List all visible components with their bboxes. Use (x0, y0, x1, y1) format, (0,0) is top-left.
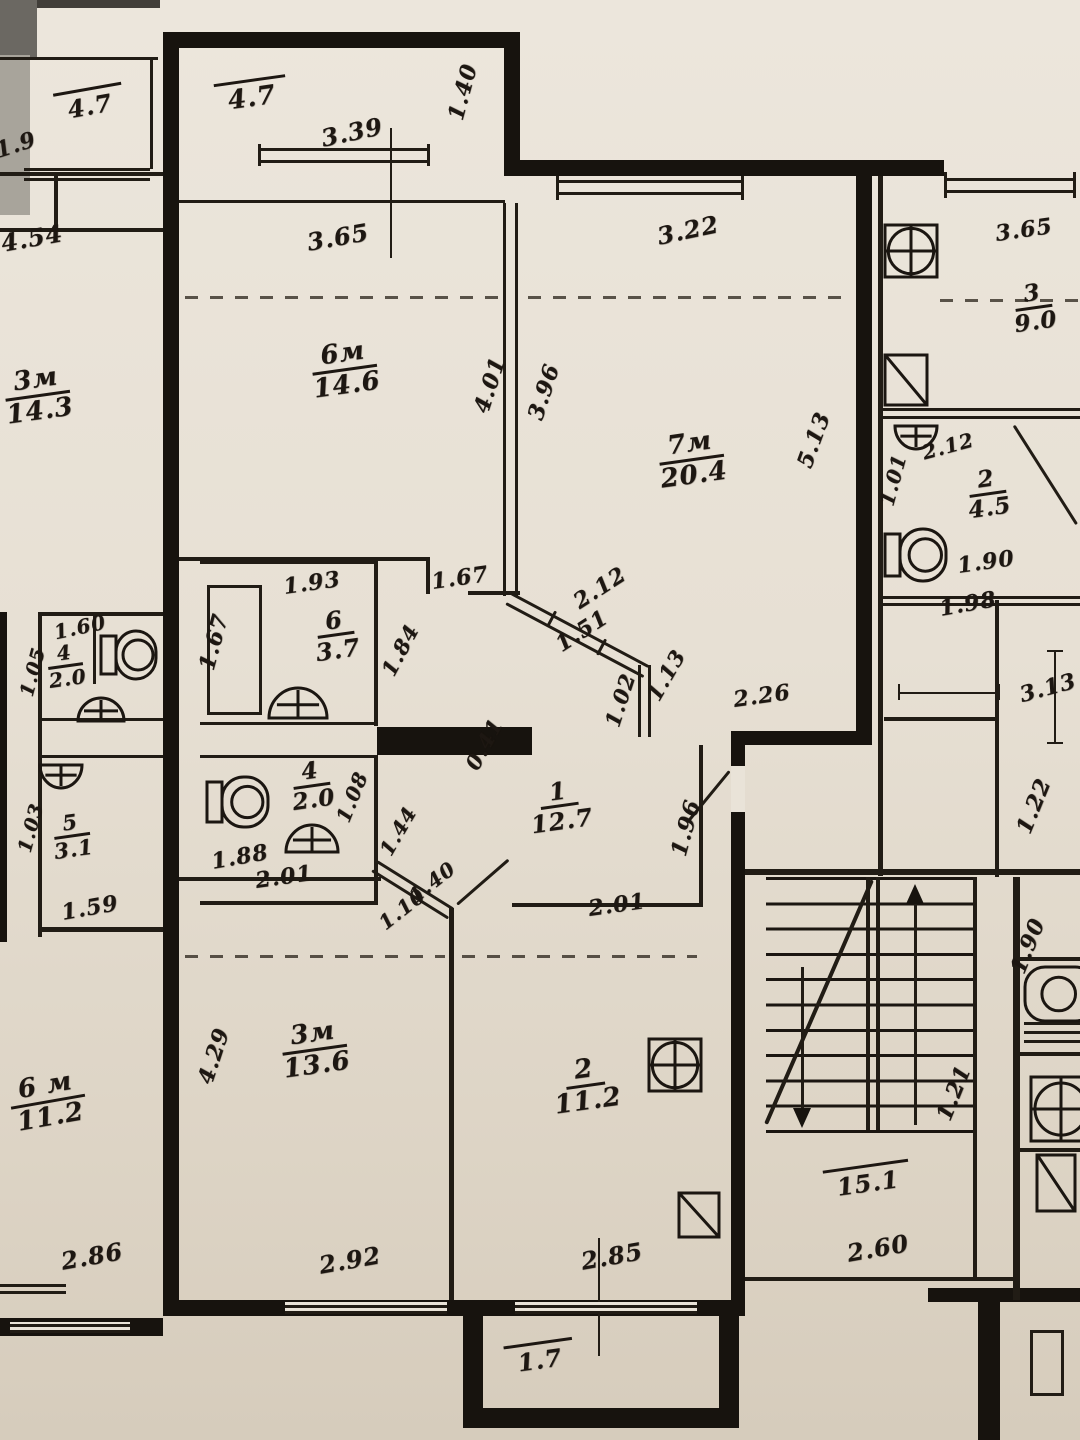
wall-thin (866, 877, 870, 1130)
wall-thin (200, 560, 378, 564)
tub-icon (1024, 966, 1080, 1022)
wall-thin (374, 560, 378, 726)
wall-thin (150, 57, 153, 169)
window-glazing (10, 1330, 130, 1333)
room-area: 4.5 (967, 492, 1013, 523)
wall-thin (374, 757, 378, 905)
window-glazing (515, 1305, 697, 1308)
wall-thin (1047, 650, 1063, 652)
wall-thick (463, 1408, 739, 1428)
wall-thin (944, 178, 1076, 181)
wall-thin (426, 557, 430, 594)
wall-thin (1030, 1393, 1064, 1396)
dim-label: 1.08 (331, 768, 373, 826)
dim-label: 1.03 (14, 801, 48, 855)
wall-thin (914, 893, 917, 1125)
wall-thin (0, 172, 163, 176)
dim-label: 1.02 (600, 670, 641, 730)
wall-thin (1073, 172, 1076, 198)
wall-thin (898, 684, 900, 700)
wall-thin (745, 1277, 1013, 1281)
area-label: 4.7 (214, 78, 290, 118)
wall-thin (1024, 1031, 1080, 1034)
area-value: 15.1 (823, 1159, 913, 1204)
wall-thin (200, 722, 378, 725)
wall-thin (1024, 1040, 1080, 1043)
sink-icon (38, 763, 84, 790)
dashed-line (185, 955, 445, 958)
dim-label: 3.65 (994, 213, 1055, 247)
dashed-line (528, 296, 850, 299)
wall-thin (0, 57, 158, 60)
stove-icon (884, 224, 938, 278)
room-label: 6 м11.2 (6, 1066, 90, 1138)
stove-icon (1030, 1076, 1080, 1142)
wall-thick (978, 1302, 1000, 1440)
room-area: 2.0 (47, 665, 87, 692)
dashed-line (462, 955, 697, 958)
wall-thin (745, 869, 1080, 875)
dim-label: 1.22 (1011, 774, 1057, 837)
sink-icon (267, 686, 329, 720)
wall-thin (556, 192, 744, 195)
dim-label: 2.85 (579, 1236, 646, 1275)
wall-thin (556, 180, 744, 183)
room-label: 53.1 (49, 809, 95, 863)
wall-thick (928, 1288, 1080, 1302)
area-value: 4.7 (53, 82, 126, 126)
wall-thin (944, 190, 1076, 193)
area-label: 4.7 (54, 86, 127, 127)
window-glazing (285, 1311, 447, 1314)
stair-arrow-icon (906, 884, 924, 904)
room-label: 211.2 (549, 1052, 624, 1120)
wall-thin (998, 684, 1000, 700)
room-label: 42.0 (44, 640, 88, 692)
floor-plan-canvas: 4.73.391.403.653.226м14.67м20.44.013.965… (0, 0, 1080, 1440)
door-leaf (456, 859, 509, 905)
dim-label: 4.29 (193, 1025, 236, 1088)
dim-label: 3.96 (523, 361, 566, 424)
dim-label: 3.65 (305, 217, 372, 256)
wall-thin (207, 712, 262, 715)
room-area: 2.0 (291, 784, 337, 815)
room-area: 3.7 (314, 633, 362, 665)
wall-thick (504, 32, 520, 176)
wall-thin (515, 203, 518, 560)
fridge-icon (1036, 1154, 1076, 1212)
wall-thin (1061, 1330, 1064, 1396)
wall-thick (0, 612, 7, 942)
dim-label: 1.67 (430, 561, 491, 595)
room-label: 6м14.6 (308, 336, 383, 404)
room-label: 42.0 (287, 757, 337, 816)
wall-thin (179, 200, 505, 203)
dim-label: 2.60 (845, 1228, 912, 1267)
wall-thin (900, 692, 1000, 694)
dim-label: 4.54 (0, 218, 65, 257)
wall-thin (0, 1284, 66, 1287)
wall-thin (876, 877, 880, 1130)
room-label: 24.5 (963, 465, 1013, 524)
wall-thick (163, 32, 179, 1316)
room-area: 3.1 (53, 835, 95, 863)
sink-icon (76, 696, 126, 723)
window-glazing (285, 1305, 447, 1308)
room-label: 112.7 (525, 774, 595, 838)
wall-thick (745, 731, 872, 745)
dim-label: 1.98 (937, 586, 998, 622)
dim-label: 1.93 (282, 566, 343, 600)
room-label: 39.0 (1009, 279, 1059, 338)
dim-label: 1.40 (443, 61, 483, 123)
toilet-icon (100, 630, 158, 680)
wall-thin (449, 908, 454, 1300)
photo-edge (0, 0, 37, 57)
dim-label: 2.86 (59, 1236, 126, 1275)
wall-thin (259, 585, 262, 715)
dim-label: 3.13 (1017, 668, 1079, 708)
room-area: 12.7 (529, 803, 594, 838)
stair-arrow-icon (793, 1108, 811, 1128)
fridge-icon (884, 354, 928, 406)
sink-icon (284, 823, 340, 854)
window-glazing (10, 1324, 130, 1327)
wall-thin (1015, 1052, 1080, 1056)
door-swing (1013, 425, 1078, 525)
room-label: 3м13.6 (278, 1016, 353, 1084)
wall-thin (556, 176, 559, 200)
door-opening (731, 766, 745, 812)
dim-label: 3.22 (654, 209, 721, 250)
wall-thin (880, 416, 1080, 419)
wall-thin (0, 1291, 66, 1294)
room-label: 3м14.3 (1, 362, 76, 430)
dim-label: 5.13 (792, 408, 836, 471)
wall-thick (731, 731, 745, 1316)
wall-thick (856, 160, 872, 745)
area-label: 15.1 (823, 1163, 913, 1204)
room-label: 7м20.4 (655, 426, 730, 494)
wall-thick (719, 1316, 739, 1428)
wall-thin (38, 755, 163, 758)
wall-thin (1047, 742, 1063, 744)
dim-label: 2.01 (587, 888, 648, 922)
wall-thin (200, 755, 378, 758)
room-label: 63.7 (310, 604, 362, 665)
dim-label: 2.26 (732, 679, 793, 713)
area-value: 4.7 (214, 74, 290, 118)
dim-label: 1.44 (374, 802, 421, 860)
dim-label: 1.67 (194, 611, 234, 673)
wall-thin (878, 176, 883, 876)
room-area: 11.2 (553, 1083, 624, 1120)
wall-thin (1030, 1330, 1033, 1396)
dim-label: 2.92 (317, 1240, 384, 1279)
wall-thin (258, 160, 430, 163)
dim-label: 1.84 (376, 620, 424, 680)
wall-thin (200, 901, 378, 905)
wall-thin (38, 927, 163, 932)
stove-icon (648, 1038, 702, 1092)
wall-thin (207, 585, 262, 588)
dim-label: 1.90 (956, 545, 1017, 579)
wall-thin (944, 172, 947, 198)
toilet-icon (206, 776, 270, 828)
wall-thick (872, 160, 944, 176)
wall-thick (163, 32, 520, 48)
area-value: 1.7 (503, 1337, 576, 1379)
wall-thin (24, 178, 150, 181)
wall-thin (884, 717, 996, 721)
wall-thin (880, 408, 1080, 411)
wall-thick (377, 727, 532, 755)
fridge-icon (678, 1192, 720, 1238)
wall-thin (1030, 1330, 1064, 1333)
window-glazing (515, 1311, 697, 1314)
wall-thin (1015, 1148, 1080, 1152)
toilet-icon (884, 528, 948, 582)
area-label: 1.7 (504, 1341, 576, 1379)
room-area: 9.0 (1013, 306, 1059, 337)
wall-thin (741, 176, 744, 200)
wall-thin (24, 168, 150, 171)
dim-label: 1.05 (16, 645, 50, 699)
dashed-line (940, 299, 1078, 302)
wall-thin (995, 600, 999, 877)
wall-thin (390, 128, 392, 258)
dim-label: 1.59 (59, 890, 120, 926)
dim-label: 3.39 (318, 111, 385, 152)
dashed-line (185, 296, 500, 299)
wall-thick (504, 160, 872, 176)
